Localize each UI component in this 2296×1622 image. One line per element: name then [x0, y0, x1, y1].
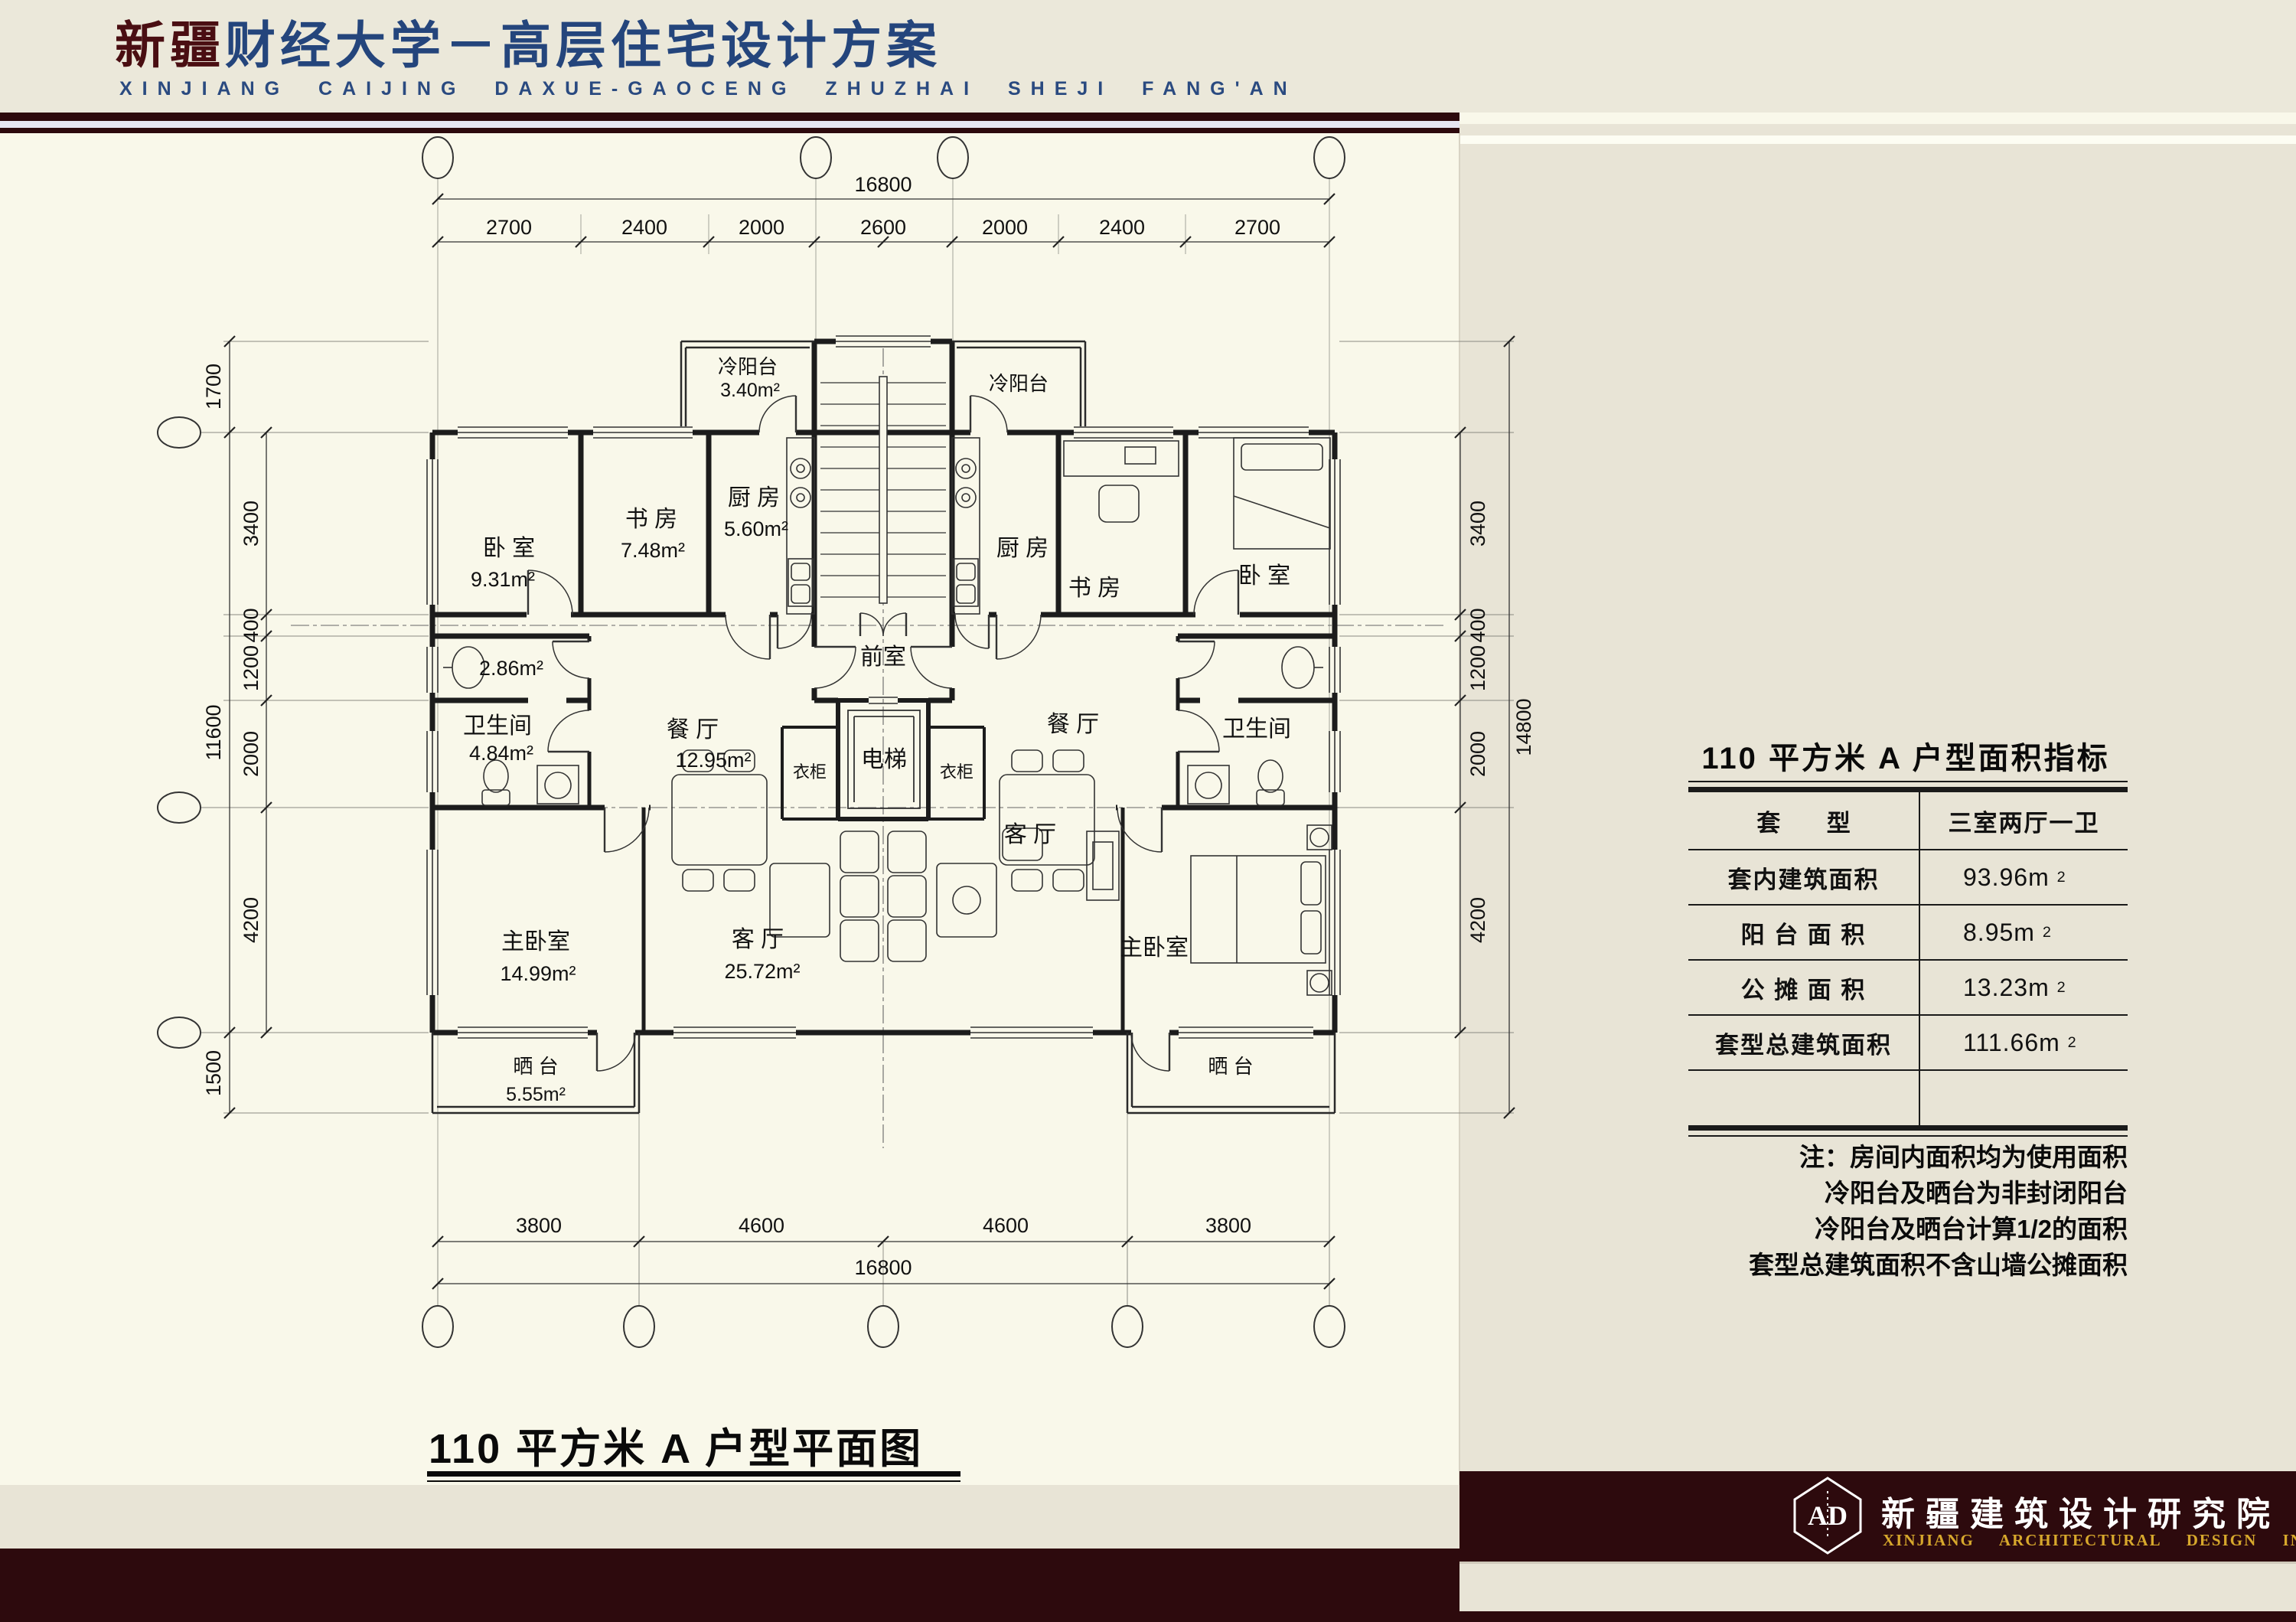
right-top-stripe	[1459, 135, 2296, 144]
dim-left-seg-5: 4200	[240, 897, 263, 943]
institute-name-en: XINJIANG ARCHITECTURAL DESIGN INSTITUTE	[1883, 1531, 2296, 1550]
label-bedroom-left: 卧 室	[483, 536, 535, 561]
label-cold-balcony-left: 冷阳台	[718, 355, 778, 378]
table-rule-bottom-thin	[1688, 1135, 2128, 1137]
table-row-value: 8.95m 2	[1919, 904, 2128, 959]
area-study-left: 7.48m²	[621, 539, 685, 562]
dim-right-seg-2: 400	[1466, 608, 1489, 642]
area-cold-balcony-left: 3.40m²	[720, 380, 780, 401]
note-line: 冷阳台及晒台计算1/2的面积	[1546, 1211, 2128, 1247]
dim-left-seg-4: 2000	[240, 731, 263, 777]
label-vestibule: 前室	[860, 645, 906, 670]
label-wardrobe-right: 衣柜	[940, 762, 974, 782]
note-line: 套型总建筑面积不含山墙公摊面积	[1546, 1247, 2128, 1283]
dim-bottom-seg-3: 4600	[983, 1214, 1029, 1237]
table-header-value: 三室两厅一卫	[1919, 792, 2128, 849]
table-row-value: 111.66m 2	[1919, 1014, 2128, 1069]
bottom-maroon-strip	[0, 1549, 1459, 1622]
label-kitchen-left: 厨 房	[728, 485, 780, 511]
table-rule-bottom-thick	[1688, 1125, 2128, 1131]
label-kitchen-right: 厨 房	[996, 536, 1049, 561]
table-rule-top-thick	[1688, 787, 2128, 792]
area-terrace-left: 5.55m²	[506, 1084, 566, 1105]
plan-caption: 110 平方米 A 户型平面图	[429, 1415, 923, 1475]
label-living-left: 客 厅	[732, 927, 784, 952]
header-rule-top	[0, 113, 1459, 121]
dim-left-seg-2: 400	[240, 608, 263, 642]
label-terrace-left: 晒 台	[513, 1055, 558, 1078]
institute-logo: AD	[1792, 1476, 1863, 1555]
label-bath-left: 卫生间	[463, 713, 532, 739]
dim-right-seg-3: 1200	[1466, 645, 1489, 691]
room-labels: 卧 室 9.31m² 书 房 7.48m² 厨 房 5.60m² 冷阳台 3.4…	[463, 355, 1291, 1105]
dim-bottom-seg-1: 3800	[516, 1214, 562, 1237]
table-empty-label	[1688, 1069, 1919, 1125]
dimension-ticks	[224, 194, 1515, 1289]
staircase	[820, 377, 946, 603]
plan-notes: 注：房间内面积均为使用面积 冷阳台及晒台为非封闭阳台 冷阳台及晒台计算1/2的面…	[1546, 1139, 2128, 1283]
dim-top-seg-4: 2600	[860, 216, 906, 239]
label-wardrobe-left: 衣柜	[793, 762, 827, 782]
dim-right-seg-5: 4200	[1466, 897, 1489, 943]
table-header-label: 套 型	[1688, 792, 1919, 849]
title-project: 财经大学－高层住宅设计方案	[225, 18, 941, 74]
area-kitchen-left: 5.60m²	[724, 517, 788, 540]
area-bath-left: 4.84m²	[469, 742, 533, 765]
dim-top-seg-7: 2700	[1234, 216, 1280, 239]
label-dining-right: 餐 厅	[1047, 712, 1099, 737]
table-title: 110 平方米 A 户型面积指标	[1668, 733, 2143, 778]
dim-left-outer-top: 1700	[202, 364, 225, 410]
dim-right-total: 14800	[1512, 698, 1535, 756]
table-row-label: 套内建筑面积	[1688, 849, 1919, 904]
header-rule-bottom	[0, 128, 1459, 133]
dim-left-total: 11600	[202, 704, 225, 760]
page-subtitle-pinyin: XINJIANG CAIJING DAXUE-GAOCENG ZHUZHAI S…	[119, 78, 1297, 100]
caption-underline-thin	[427, 1480, 960, 1482]
label-master-left: 主卧室	[501, 929, 570, 955]
table-row-label: 套型总建筑面积	[1688, 1014, 1919, 1069]
header-rule-stripe	[0, 121, 1459, 128]
area-dining-left: 12.95m²	[675, 749, 751, 772]
caption-underline-thick	[427, 1471, 960, 1477]
dim-left-outer-bottom: 1500	[202, 1050, 225, 1096]
table-empty-value	[1919, 1069, 2128, 1125]
right-top-band	[1459, 124, 2296, 135]
dim-left-seg-3: 1200	[240, 645, 263, 691]
dim-top-seg-3: 2000	[739, 216, 784, 239]
dim-top-seg-1: 2700	[486, 216, 532, 239]
label-cold-balcony-right: 冷阳台	[989, 372, 1049, 395]
dim-right-seg-4: 2000	[1466, 731, 1489, 777]
label-master-right: 主卧室	[1120, 935, 1189, 961]
label-dining-left: 餐 厅	[667, 717, 719, 742]
dim-top-seg-6: 2400	[1099, 216, 1145, 239]
note-line: 注：房间内面积均为使用面积	[1546, 1139, 2128, 1175]
bottom-strip	[0, 1485, 1459, 1549]
table-row-value: 93.96m 2	[1919, 849, 2128, 904]
dim-bottom-seg-4: 3800	[1205, 1214, 1251, 1237]
table-row-label: 阳 台 面 积	[1688, 904, 1919, 959]
dim-left-seg-1: 3400	[240, 501, 263, 547]
dimension-lines	[230, 199, 1509, 1284]
title-school-prefix: 新疆	[115, 18, 225, 74]
note-line: 冷阳台及晒台为非封闭阳台	[1546, 1175, 2128, 1211]
area-bedroom-left: 9.31m²	[471, 568, 535, 591]
label-study-left: 书 房	[625, 507, 677, 532]
table-row-value: 13.23m 2	[1919, 959, 2128, 1014]
area-table: 套 型 三室两厅一卫 套内建筑面积 93.96m 2 阳 台 面 积 8.95m…	[1688, 781, 2128, 1137]
table-row-label: 公 摊 面 积	[1688, 959, 1919, 1014]
label-elevator: 电梯	[861, 747, 907, 772]
dim-top-total: 16800	[854, 173, 912, 196]
label-terrace-right: 晒 台	[1208, 1055, 1253, 1078]
logo-monogram: AD	[1808, 1500, 1848, 1531]
label-bedroom-right: 卧 室	[1238, 563, 1290, 589]
header-band: 新疆财经大学－高层住宅设计方案 XINJIANG CAIJING DAXUE-G…	[0, 0, 2296, 113]
label-study-right: 书 房	[1068, 576, 1120, 601]
floor-plan-drawing: 卧 室 9.31m² 书 房 7.48m² 厨 房 5.60m² 冷阳台 3.4…	[0, 133, 1546, 1480]
label-living-right: 客 厅	[1004, 822, 1056, 847]
dim-top-seg-2: 2400	[621, 216, 667, 239]
dim-right-seg-1: 3400	[1466, 501, 1489, 547]
footer-bottom-edge	[1459, 1611, 2296, 1622]
footer-beige	[1459, 1564, 2296, 1611]
label-bath-right: 卫生间	[1222, 716, 1291, 742]
institute-name-cn: 新疆建筑设计研究院	[1881, 1487, 2281, 1536]
dim-bottom-seg-2: 4600	[739, 1214, 784, 1237]
dim-bottom-total: 16800	[854, 1256, 912, 1279]
witness-lines	[201, 341, 1514, 1306]
area-master-left: 14.99m²	[500, 962, 576, 985]
area-wash-left: 2.86m²	[479, 657, 543, 680]
area-living-left: 25.72m²	[724, 960, 800, 983]
grid-bubbles	[158, 137, 1345, 1347]
page-title: 新疆财经大学－高层住宅设计方案	[115, 5, 941, 78]
dim-top-seg-5: 2000	[982, 216, 1028, 239]
